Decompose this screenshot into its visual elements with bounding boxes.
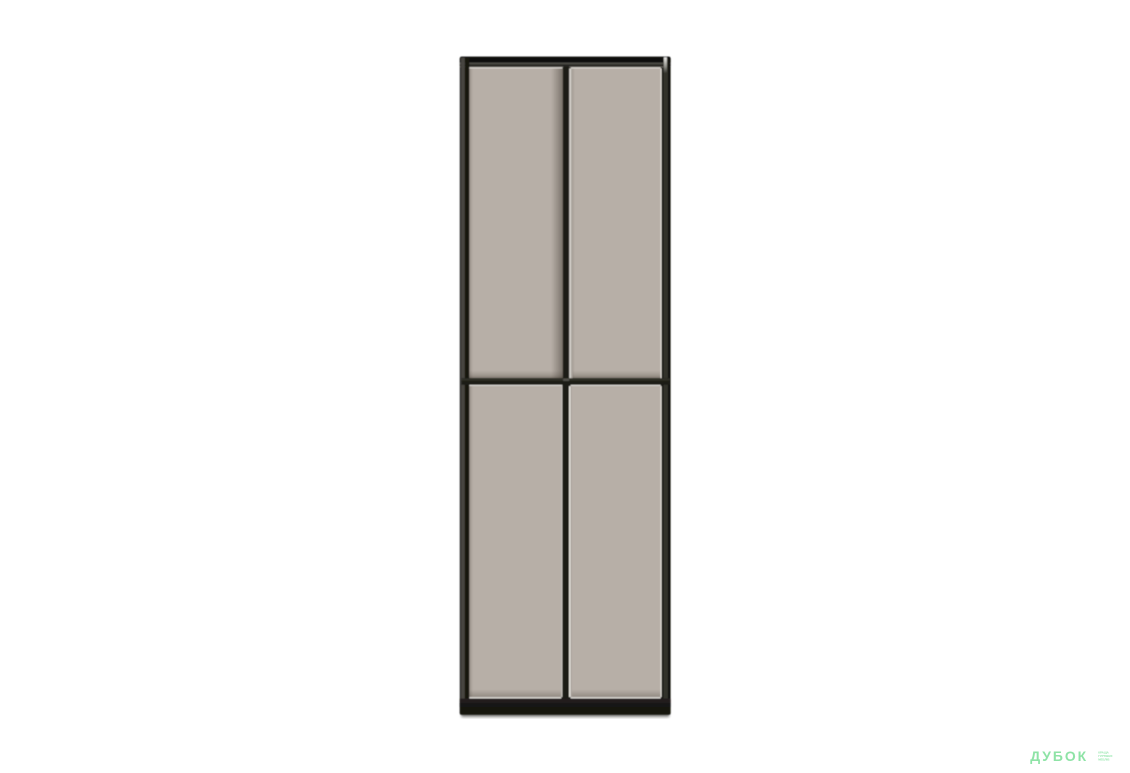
svg-text:МЕБЛІВ: МЕБЛІВ [1098, 758, 1109, 762]
svg-text:ДУБОК: ДУБОК [1030, 748, 1088, 764]
